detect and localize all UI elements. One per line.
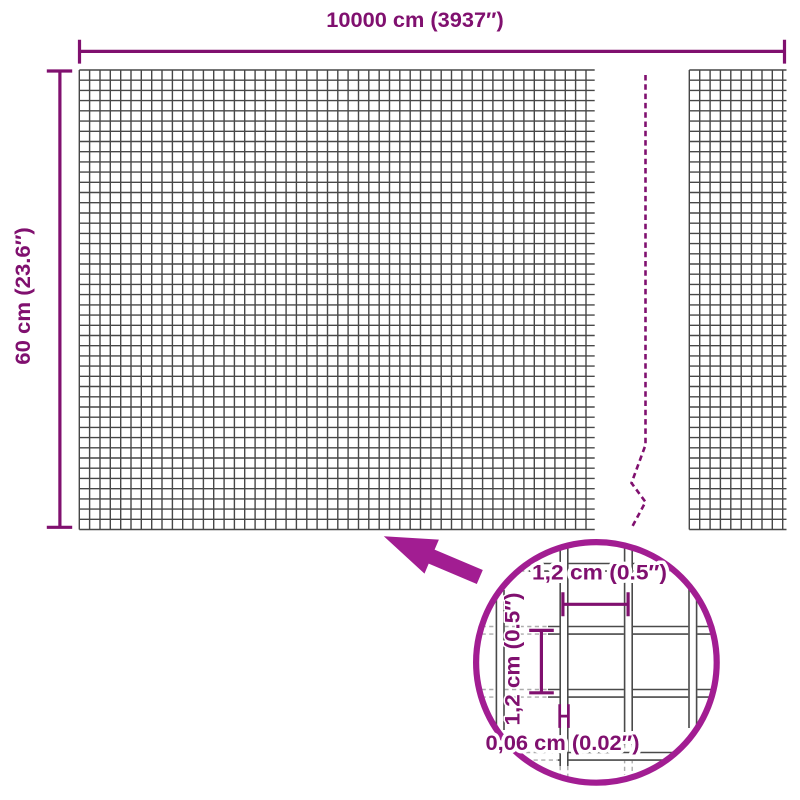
svg-text:1,2 cm (0.5″): 1,2 cm (0.5″)	[501, 593, 525, 726]
svg-text:10000 cm (3937″): 10000 cm (3937″)	[326, 8, 504, 32]
svg-text:60 cm (23.6″): 60 cm (23.6″)	[11, 227, 35, 365]
svg-text:1,2 cm (0.5″): 1,2 cm (0.5″)	[532, 561, 667, 585]
svg-text:0,06 cm (0.02″): 0,06 cm (0.02″)	[486, 731, 640, 755]
